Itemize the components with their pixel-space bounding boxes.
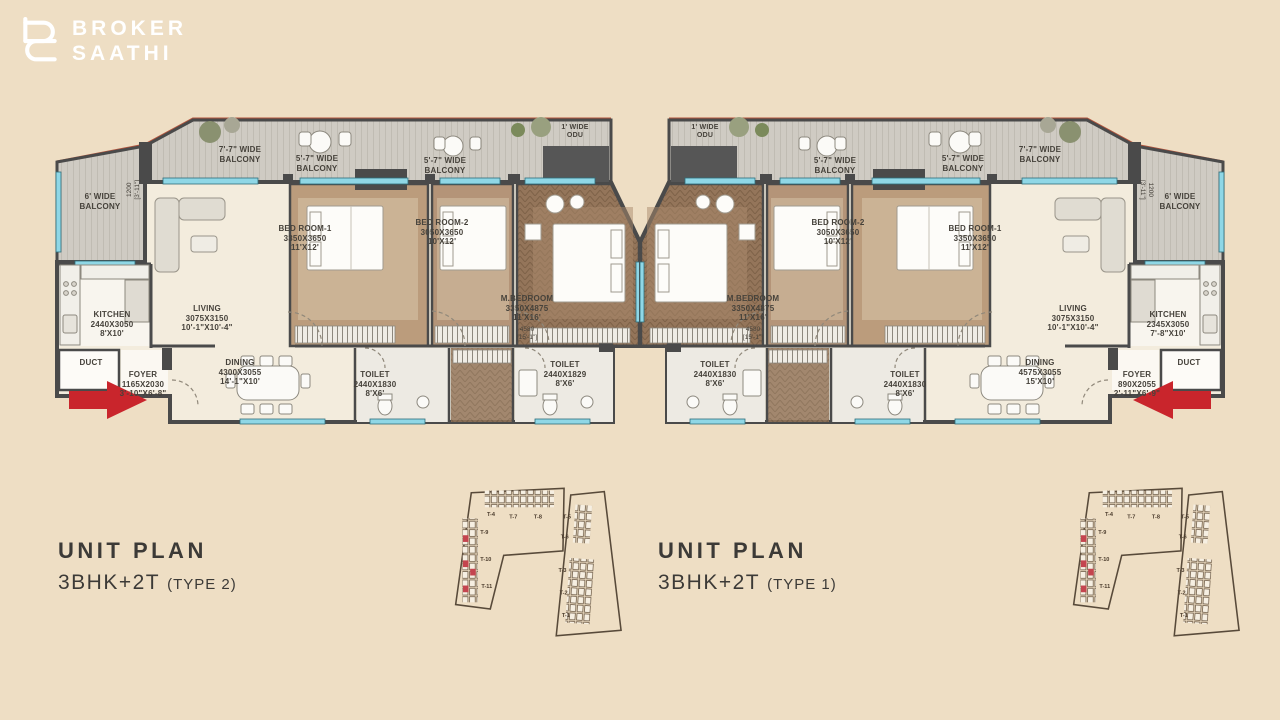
label-odu: 1' WIDE ODU [665, 124, 745, 141]
brand-name-line1: BROKER [72, 16, 187, 41]
brand-name-line2: SAATHI [72, 41, 187, 66]
label-living: LIVING 3075X3150 10'-1"X10'-4" [1013, 304, 1133, 333]
tower-label: T-5 [563, 514, 571, 520]
floor-plan-type1: 7'-7" WIDE BALCONY 5'-7" WIDE BALCONY 5'… [635, 112, 1225, 457]
tower-label: T-7 [1127, 514, 1135, 520]
brand-name: BROKER SAATHI [72, 16, 187, 66]
label-bedroom1: BED ROOM-1 3350X3650 11'X12' [915, 224, 1035, 253]
floor-plan-type2: 7'-7" WIDE BALCONY 5'-7" WIDE BALCONY 5'… [55, 112, 645, 457]
label-master-toilet: TOILET 2440X1829 8'X6' [505, 360, 625, 389]
label-balcony-6-dim: 1200 [3'-11"] [126, 169, 142, 211]
tower-label: T-7 [509, 514, 517, 520]
label-balcony-57-b: 5'-7" WIDE BALCONY [385, 156, 505, 175]
tower-label: T-3 [1176, 568, 1184, 574]
label-dining: DINING 4300X3055 14'-1"X10' [180, 358, 300, 387]
unit-config: 3BHK+2T [58, 571, 160, 594]
broker-saathi-logo-icon [18, 14, 62, 68]
tower-label: T-6 [1179, 535, 1187, 541]
tower-label: T-3 [558, 568, 566, 574]
label-bedroom2: BED ROOM-2 3050X3650 10'X12' [778, 218, 898, 247]
tower-label: T-8 [1152, 514, 1160, 520]
label-toilet: TOILET 2440X1830 8'X6' [315, 370, 435, 399]
label-kitchen: KITCHEN 2440X3050 8'X10' [67, 310, 157, 339]
tower-label: T-8 [534, 514, 542, 520]
label-balcony-57-a: 5'-7" WIDE BALCONY [903, 154, 1023, 173]
label-bedroom2: BED ROOM-2 3050X3650 10'X12' [382, 218, 502, 247]
label-duct: DUCT [61, 358, 121, 368]
label-balcony-57-b: 5'-7" WIDE BALCONY [775, 156, 895, 175]
unit-title-block-type1: UNIT PLAN 3BHK+2T (TYPE 1) [658, 538, 837, 595]
tower-label: T-6 [561, 535, 569, 541]
tower-label: T-10 [1098, 557, 1109, 563]
unit-plan-config: 3BHK+2T (TYPE 2) [58, 571, 237, 595]
label-master-bedroom-dim: 4580 [15'-1"] [723, 326, 783, 342]
tower-label: T-9 [1098, 530, 1106, 536]
tower-label: T-11 [481, 584, 492, 590]
label-balcony-6-dim: 1200 [3'-11"] [1138, 169, 1154, 211]
tower-label: T-1 [562, 613, 570, 619]
tower-label: T-1 [1180, 613, 1188, 619]
label-kitchen: KITCHEN 2345X3050 7'-8"X10' [1123, 310, 1213, 339]
site-key-plan-left: T-4 T-7 T-8 T-9 T-10 T-11 T-5 T-6 T-3 T-… [440, 487, 630, 655]
unit-type: (TYPE 1) [767, 576, 837, 593]
label-master-toilet: TOILET 2440X1830 8'X6' [655, 360, 775, 389]
label-duct: DUCT [1159, 358, 1219, 368]
label-dining: DINING 4575X3055 15'X10' [980, 358, 1100, 387]
label-toilet: TOILET 2440X1830 8'X6' [845, 370, 965, 399]
label-master-bedroom-dim: 4580 [15'-1"] [497, 326, 557, 342]
label-living: LIVING 3075X3150 10'-1"X10'-4" [147, 304, 267, 333]
tower-label: T-2 [560, 590, 568, 596]
tower-label: T-9 [480, 530, 488, 536]
label-bedroom1: BED ROOM-1 3350X3650 11'X12' [245, 224, 365, 253]
brand-logo: BROKER SAATHI [18, 14, 187, 68]
unit-plan-config: 3BHK+2T (TYPE 1) [658, 571, 837, 595]
unit-plan-heading: UNIT PLAN [58, 538, 237, 564]
unit-plan-heading: UNIT PLAN [658, 538, 837, 564]
tower-label: T-10 [480, 557, 491, 563]
floor-plan-sheet: BROKER SAATHI 7'-7" WIDE BALCONY 5'-7" W… [0, 0, 1280, 720]
label-balcony-57-a: 5'-7" WIDE BALCONY [257, 154, 377, 173]
unit-config: 3BHK+2T [658, 571, 760, 594]
tower-label: T-11 [1099, 584, 1110, 590]
tower-label: T-5 [1181, 514, 1189, 520]
unit-title-block-type2: UNIT PLAN 3BHK+2T (TYPE 2) [58, 538, 237, 595]
site-key-plan-right: T-4 T-7 T-8 T-9 T-10 T-11 T-5 T-6 T-3 T-… [1058, 487, 1248, 655]
tower-label: T-4 [487, 512, 496, 518]
label-master-bedroom: M.BEDROOM 3350X4875 11'X16' [693, 294, 813, 323]
tower-label: T-4 [1105, 512, 1114, 518]
unit-type: (TYPE 2) [167, 576, 237, 593]
label-odu: 1' WIDE ODU [535, 124, 615, 141]
tower-label: T-2 [1178, 590, 1186, 596]
label-master-bedroom: M.BEDROOM 3350X4875 11'X16' [467, 294, 587, 323]
